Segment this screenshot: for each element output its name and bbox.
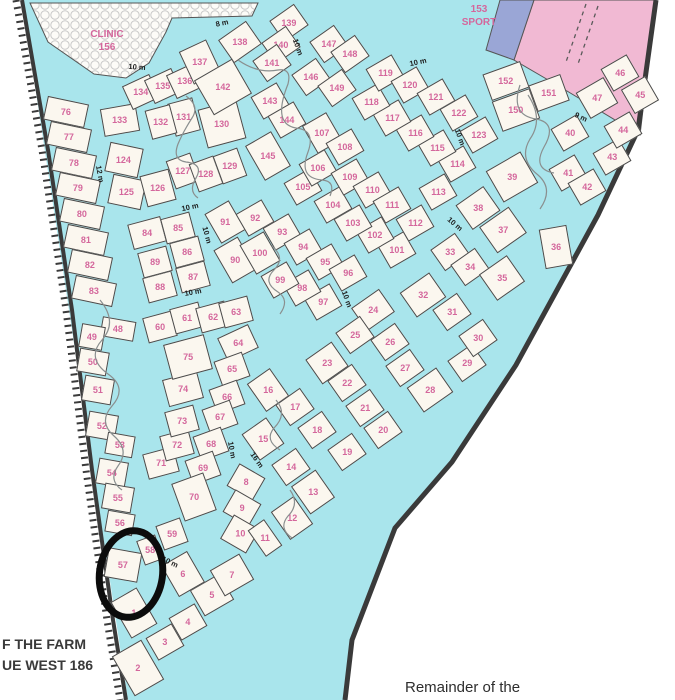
plot-number: 47: [592, 94, 602, 103]
plot-number: 105: [295, 183, 310, 192]
plot-number: 118: [364, 98, 379, 107]
sport-number: 153: [456, 4, 502, 17]
plot-number: 22: [342, 379, 352, 388]
plot-number: 125: [119, 188, 134, 197]
plot-number: 80: [77, 209, 87, 218]
plot-19: 19: [327, 433, 366, 472]
plot-number: 81: [81, 235, 91, 244]
plot-number: 10: [235, 530, 245, 539]
plot-number: 29: [462, 359, 472, 368]
plot-number: 63: [231, 308, 241, 317]
plot-number: 24: [368, 306, 378, 315]
plot-number: 15: [258, 435, 268, 444]
plot-number: 104: [325, 201, 340, 210]
plot-number: 121: [428, 93, 443, 102]
plot-number: 8: [243, 478, 248, 487]
plot-number: 111: [385, 201, 399, 210]
plot-number: 46: [615, 69, 625, 78]
plot-number: 87: [188, 273, 198, 282]
plot-number: 152: [498, 77, 513, 86]
plot-number: 75: [183, 353, 193, 362]
plot-number: 43: [607, 153, 617, 162]
plot-number: 28: [425, 386, 435, 395]
plot-number: 137: [192, 58, 207, 67]
clinic-number: 156: [84, 42, 130, 55]
plot-number: 97: [318, 298, 328, 307]
plot-36: 36: [539, 225, 574, 269]
plot-43: 43: [593, 138, 632, 176]
plot-number: 27: [400, 364, 410, 373]
plot-number: 129: [222, 162, 237, 171]
plot-number: 41: [563, 169, 573, 178]
plot-number: 17: [290, 403, 300, 412]
plot-number: 109: [342, 173, 357, 182]
plot-number: 132: [153, 118, 168, 127]
plot-number: 115: [430, 144, 445, 153]
plot-number: 72: [172, 441, 182, 450]
plot-number: 76: [61, 107, 71, 116]
plot-number: 74: [178, 385, 188, 394]
plot-number: 150: [508, 106, 523, 115]
plot-number: 3: [162, 638, 167, 647]
street-width-label: 10 m: [446, 215, 465, 233]
plot-number: 98: [297, 284, 307, 293]
plot-53: 53: [104, 432, 135, 459]
plot-number: 35: [497, 274, 507, 283]
farm-text-line1: F THE FARM: [2, 636, 86, 652]
plot-number: 100: [252, 249, 267, 258]
plot-number: 12: [287, 514, 297, 523]
plot-number: 67: [215, 413, 225, 422]
plot-number: 73: [177, 417, 187, 426]
plot-83: 83: [71, 275, 117, 307]
plot-number: 143: [262, 97, 277, 106]
plot-number: 86: [182, 248, 192, 257]
plot-number: 33: [445, 248, 455, 257]
plot-80: 80: [59, 198, 105, 230]
plot-number: 138: [232, 38, 247, 47]
plot-number: 78: [69, 158, 79, 167]
plot-number: 23: [322, 359, 332, 368]
plot-number: 101: [389, 246, 404, 255]
clinic-label: CLINIC 156: [84, 29, 130, 54]
plot-138: 138: [218, 21, 262, 63]
plot-number: 48: [113, 324, 123, 333]
plot-number: 149: [329, 84, 344, 93]
plot-number: 19: [342, 448, 352, 457]
plot-number: 83: [89, 286, 99, 295]
plot-number: 44: [618, 126, 628, 135]
sport-name: SPORT: [456, 17, 502, 30]
plot-number: 92: [250, 214, 260, 223]
plot-number: 114: [450, 160, 465, 169]
plot-number: 110: [365, 186, 380, 195]
plot-number: 93: [277, 228, 287, 237]
plot-number: 39: [507, 173, 517, 182]
plot-number: 141: [264, 59, 279, 68]
clinic-name: CLINIC: [84, 29, 130, 42]
plot-number: 70: [189, 493, 199, 502]
plot-number: 36: [551, 243, 561, 252]
sport-label: 153 SPORT: [456, 4, 502, 29]
plot-number: 20: [378, 426, 388, 435]
plot-79: 79: [55, 172, 101, 204]
plot-75: 75: [163, 334, 213, 380]
plot-number: 68: [206, 440, 216, 449]
street-width-label: 10 m: [226, 441, 238, 459]
plot-number: 113: [431, 188, 446, 197]
plot-number: 38: [473, 204, 483, 213]
township-plan-map: 1234567891011121314151617181920212223242…: [0, 0, 675, 700]
plot-145: 145: [245, 131, 291, 181]
plot-number: 133: [112, 116, 127, 125]
plot-35: 35: [479, 255, 525, 301]
plot-124: 124: [104, 142, 143, 178]
plot-number: 127: [175, 167, 190, 176]
street-width-label: 8 m: [215, 17, 230, 28]
plot-number: 120: [402, 81, 417, 90]
plot-number: 90: [230, 256, 240, 265]
plot-number: 26: [385, 338, 395, 347]
plot-number: 148: [342, 50, 357, 59]
plot-number: 135: [155, 82, 170, 91]
plot-number: 106: [310, 164, 325, 173]
plot-number: 88: [155, 283, 165, 292]
plot-number: 112: [408, 219, 423, 228]
plot-number: 131: [176, 113, 191, 122]
plot-number: 7: [229, 571, 234, 580]
plot-number: 2: [135, 664, 140, 673]
sport-track-dashed-line: [578, 6, 598, 64]
plot-number: 25: [350, 331, 360, 340]
remainder-text: Remainder of the: [405, 679, 520, 696]
plot-number: 42: [582, 183, 592, 192]
plot-number: 51: [93, 385, 103, 394]
plot-number: 124: [116, 156, 131, 165]
plot-number: 37: [498, 226, 508, 235]
street-width-label: 10 m: [128, 62, 146, 72]
plot-number: 31: [447, 308, 457, 317]
plot-number: 64: [233, 339, 243, 348]
plot-number: 32: [418, 291, 428, 300]
plot-number: 4: [185, 618, 190, 627]
plot-number: 61: [182, 314, 192, 323]
sport-track-dashed-line: [566, 4, 586, 62]
plot-number: 82: [85, 260, 95, 269]
plot-number: 34: [465, 263, 475, 272]
plot-73: 73: [164, 405, 200, 438]
plot-number: 14: [286, 463, 296, 472]
plot-number: 40: [565, 129, 575, 138]
plot-55: 55: [101, 483, 135, 514]
plot-number: 103: [345, 219, 360, 228]
plot-number: 18: [312, 426, 322, 435]
plot-number: 16: [263, 386, 273, 395]
plot-number: 102: [367, 231, 382, 240]
plot-number: 99: [275, 276, 285, 285]
plot-number: 145: [260, 152, 275, 161]
plot-number: 55: [113, 493, 123, 502]
street-width-label: 10 m: [184, 286, 202, 298]
plot-82: 82: [67, 249, 113, 281]
plot-number: 65: [227, 365, 237, 374]
plot-number: 108: [337, 143, 352, 152]
plot-number: 95: [320, 258, 330, 267]
plot-number: 50: [88, 357, 98, 366]
plot-number: 6: [180, 570, 185, 579]
plot-number: 142: [215, 83, 230, 92]
plot-number: 94: [298, 243, 308, 252]
plot-39: 39: [486, 151, 539, 202]
plot-number: 56: [115, 518, 125, 527]
street-width-label: 10 m: [409, 56, 428, 68]
plot-number: 117: [385, 114, 400, 123]
plot-77: 77: [46, 121, 92, 153]
plot-number: 60: [155, 323, 165, 332]
plot-number: 96: [343, 269, 353, 278]
farm-text-line2: UE WEST 186: [2, 657, 93, 673]
plot-number: 119: [378, 69, 393, 78]
plot-number: 146: [303, 73, 318, 82]
plot-number: 107: [314, 129, 329, 138]
plot-49: 49: [78, 323, 106, 351]
plot-number: 5: [209, 591, 214, 600]
plot-number: 123: [471, 131, 486, 140]
plot-51: 51: [81, 375, 115, 406]
plot-number: 62: [208, 313, 218, 322]
plot-number: 13: [308, 488, 318, 497]
plot-number: 21: [360, 404, 370, 413]
plot-number: 91: [220, 218, 230, 227]
plot-number: 52: [97, 421, 107, 430]
plot-number: 130: [214, 120, 229, 129]
plot-number: 79: [73, 183, 83, 192]
plot-number: 89: [150, 258, 160, 267]
plot-number: 122: [451, 109, 466, 118]
plot-50: 50: [76, 348, 110, 377]
plot-number: 134: [133, 88, 148, 97]
plot-number: 49: [87, 332, 97, 341]
street-width-label: 10 m: [181, 201, 200, 213]
plot-number: 45: [635, 91, 645, 100]
plot-number: 116: [408, 129, 423, 138]
plot-number: 126: [150, 184, 165, 193]
plot-number: 59: [167, 530, 177, 539]
plot-number: 151: [541, 89, 556, 98]
plot-number: 30: [473, 334, 483, 343]
plot-number: 54: [107, 468, 117, 477]
plot-number: 77: [64, 132, 74, 141]
plot-number: 85: [173, 224, 183, 233]
plot-number: 11: [260, 534, 270, 543]
plot-number: 9: [239, 504, 244, 513]
street-width-label: 10 m: [291, 37, 305, 56]
plot-number: 144: [279, 116, 294, 125]
plot-number: 84: [142, 229, 152, 238]
plot-number: 53: [115, 440, 125, 449]
plot-number: 128: [198, 170, 213, 179]
plot-number: 147: [321, 40, 336, 49]
plot-70: 70: [171, 472, 217, 521]
